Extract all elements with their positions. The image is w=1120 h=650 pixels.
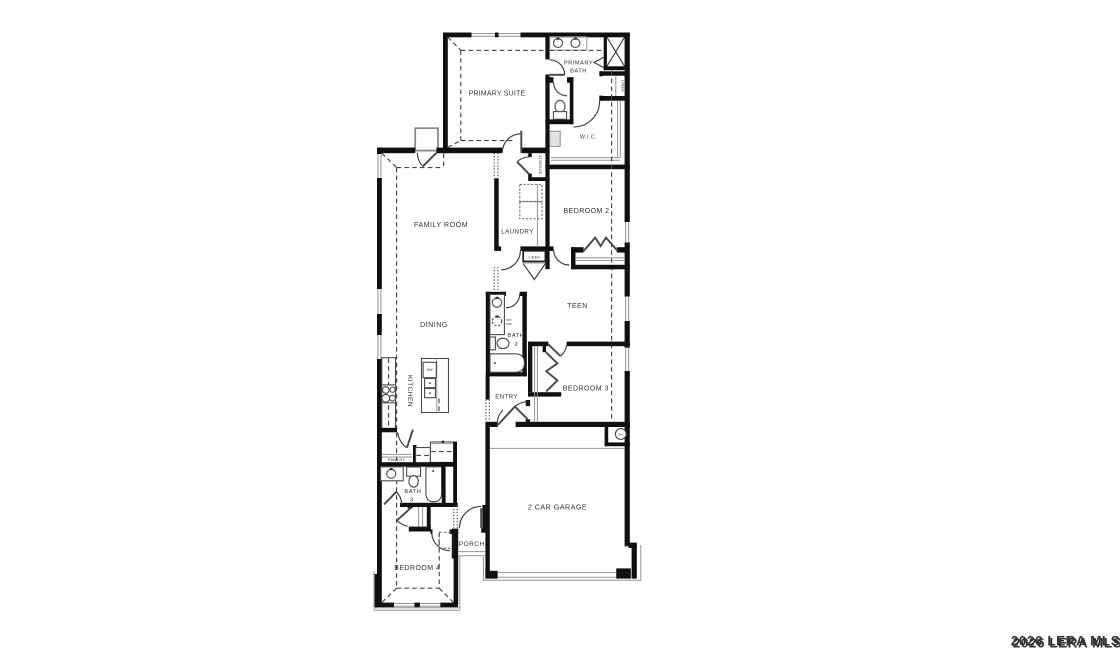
svg-text:OPT.: OPT. [506, 318, 513, 322]
svg-text:SNK: SNK [506, 322, 512, 326]
svg-text:STORAGE: STORAGE [538, 155, 542, 175]
svg-text:DW: DW [427, 368, 434, 372]
svg-text:LAUNDRY: LAUNDRY [501, 229, 534, 236]
svg-text:LINEN: LINEN [621, 80, 625, 92]
svg-text:BEDROOM 3: BEDROOM 3 [563, 386, 609, 393]
svg-text:PORCH: PORCH [459, 541, 485, 548]
svg-text:BATH: BATH [404, 489, 421, 495]
svg-text:W.I.C.: W.I.C. [580, 135, 597, 141]
svg-text:PRIMARY SUITE: PRIMARY SUITE [469, 91, 526, 98]
svg-text:BATH: BATH [507, 333, 524, 339]
svg-text:2 CAR GARAGE: 2 CAR GARAGE [528, 502, 587, 511]
svg-text:TEEN: TEEN [567, 303, 587, 310]
svg-text:BEDROOM 4: BEDROOM 4 [394, 565, 440, 572]
svg-text:BEDROOM 2: BEDROOM 2 [563, 208, 609, 215]
svg-text:PRIMARY: PRIMARY [564, 61, 593, 67]
svg-text:WH: WH [618, 432, 623, 436]
svg-text:2026 LERA MLS: 2026 LERA MLS [1011, 634, 1120, 649]
svg-text:PANTRY: PANTRY [388, 457, 406, 462]
svg-text:ENTRY: ENTRY [495, 393, 518, 400]
svg-text:3: 3 [410, 497, 414, 503]
svg-text:BATH: BATH [570, 69, 587, 75]
svg-text:LINEN: LINEN [529, 256, 541, 260]
svg-text:DINING: DINING [420, 320, 448, 329]
svg-text:KITCHEN: KITCHEN [406, 375, 413, 407]
svg-text:FAMILY ROOM: FAMILY ROOM [414, 220, 468, 229]
svg-text:2: 2 [515, 342, 519, 348]
